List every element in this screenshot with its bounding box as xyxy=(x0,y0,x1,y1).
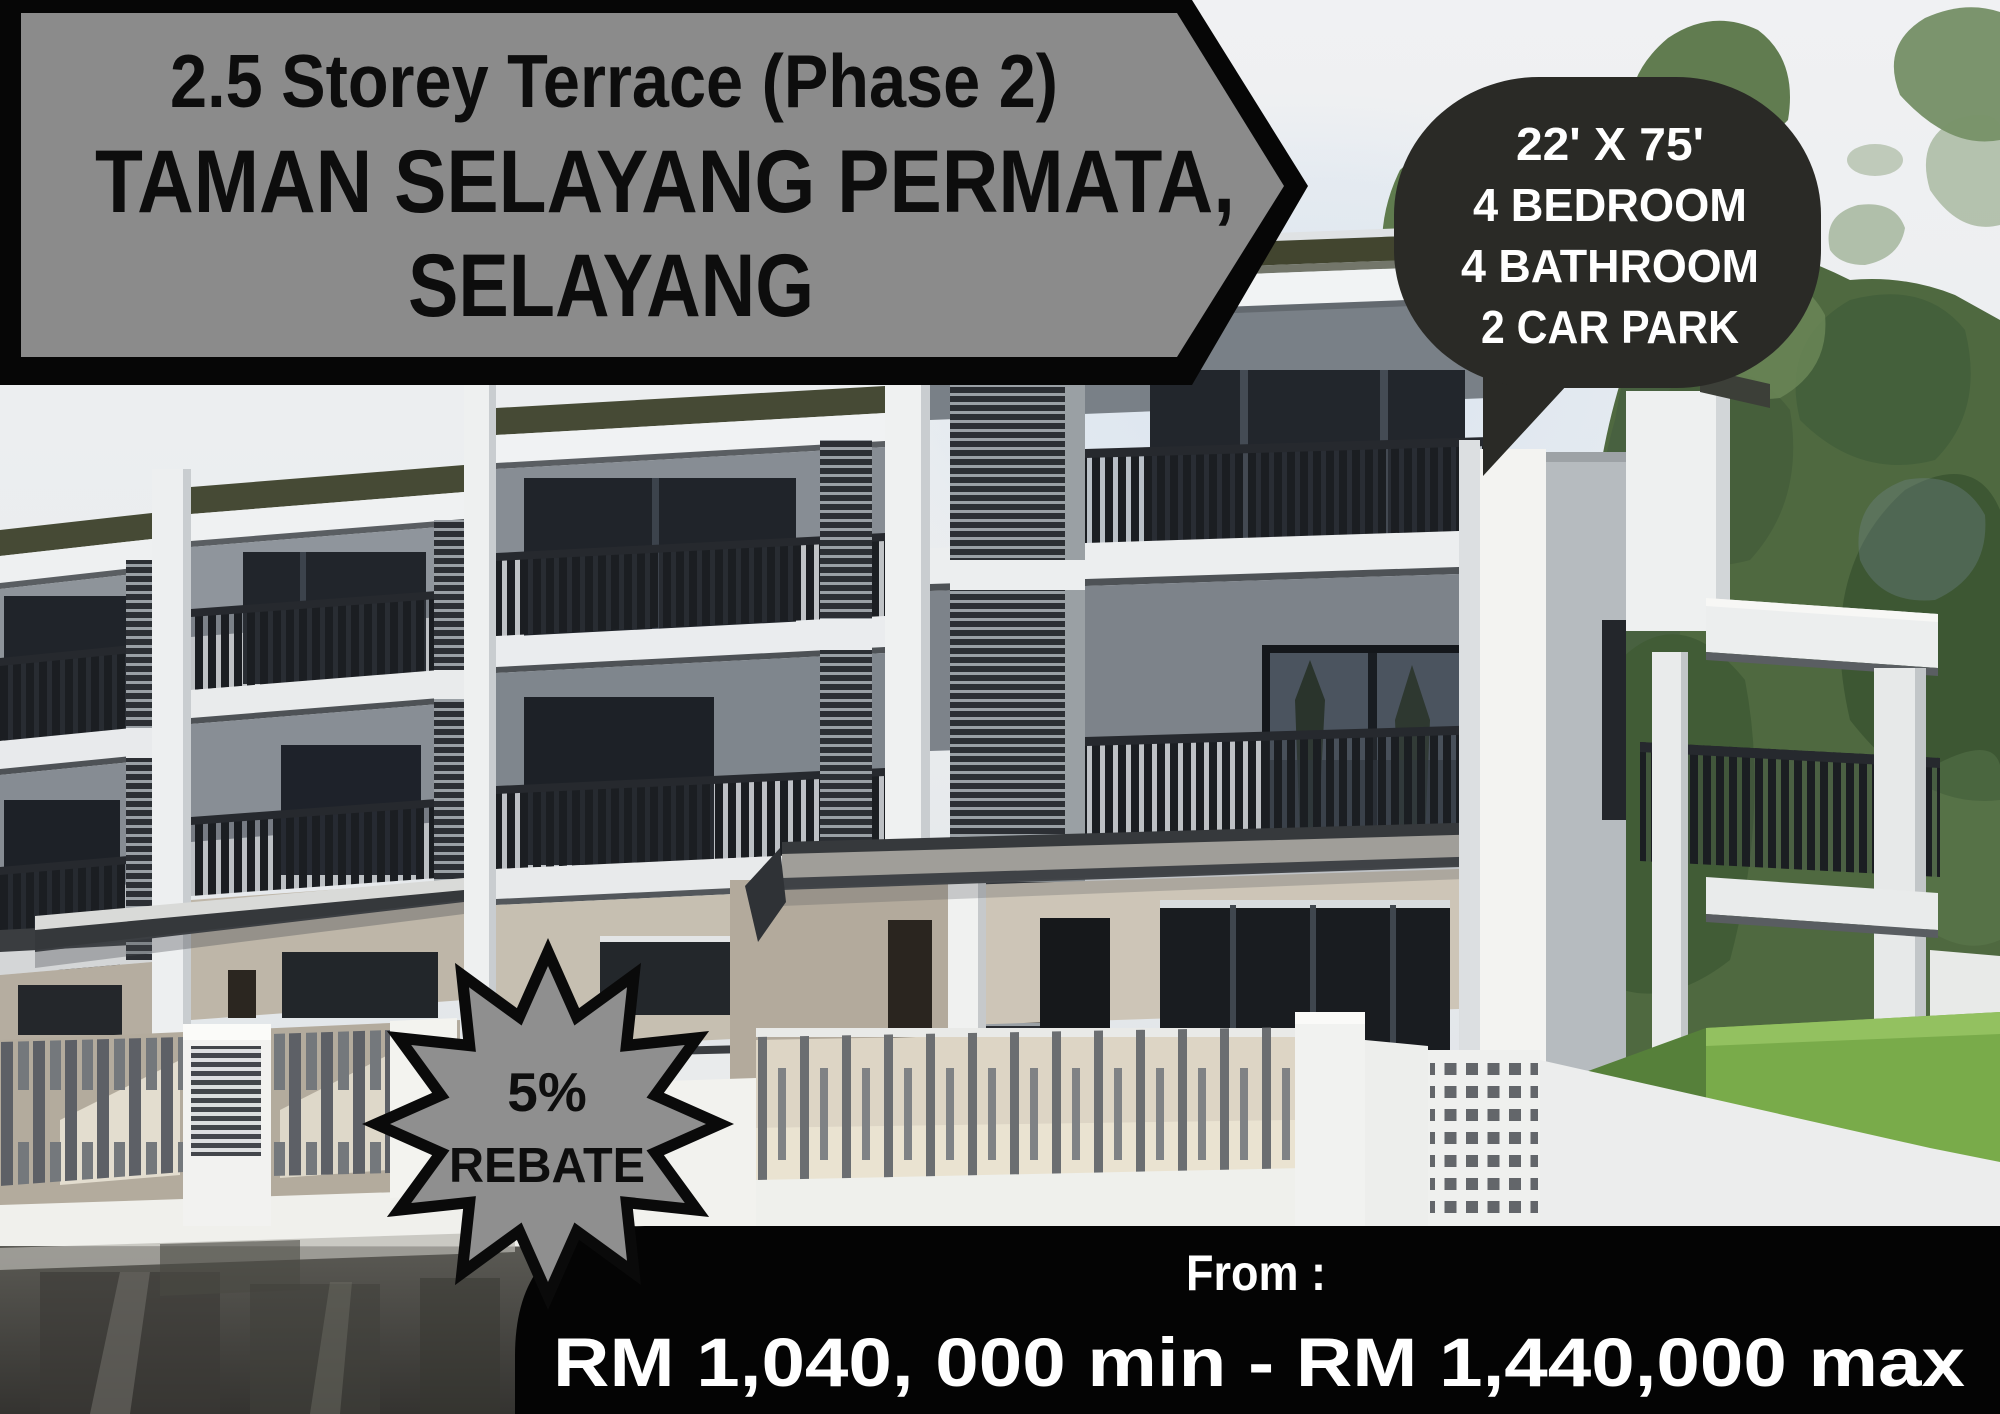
svg-text:5%: 5% xyxy=(507,1061,587,1123)
svg-text:TAMAN SELAYANG PERMATA,: TAMAN SELAYANG PERMATA, xyxy=(95,131,1235,231)
svg-text:REBATE: REBATE xyxy=(449,1139,645,1193)
svg-text:2.5 Storey Terrace (Phase 2): 2.5 Storey Terrace (Phase 2) xyxy=(170,39,1058,123)
svg-text:RM 1,040, 000 min - RM 1,440,0: RM 1,040, 000 min - RM 1,440,000 max xyxy=(553,1324,1965,1401)
svg-text:4 BATHROOM: 4 BATHROOM xyxy=(1461,240,1759,292)
svg-text:22' X 75': 22' X 75' xyxy=(1516,118,1704,170)
svg-text:From :: From : xyxy=(1186,1245,1326,1301)
svg-text:4 BEDROOM: 4 BEDROOM xyxy=(1473,179,1747,231)
svg-text:SELAYANG: SELAYANG xyxy=(408,235,814,335)
svg-text:2 CAR PARK: 2 CAR PARK xyxy=(1481,301,1739,353)
